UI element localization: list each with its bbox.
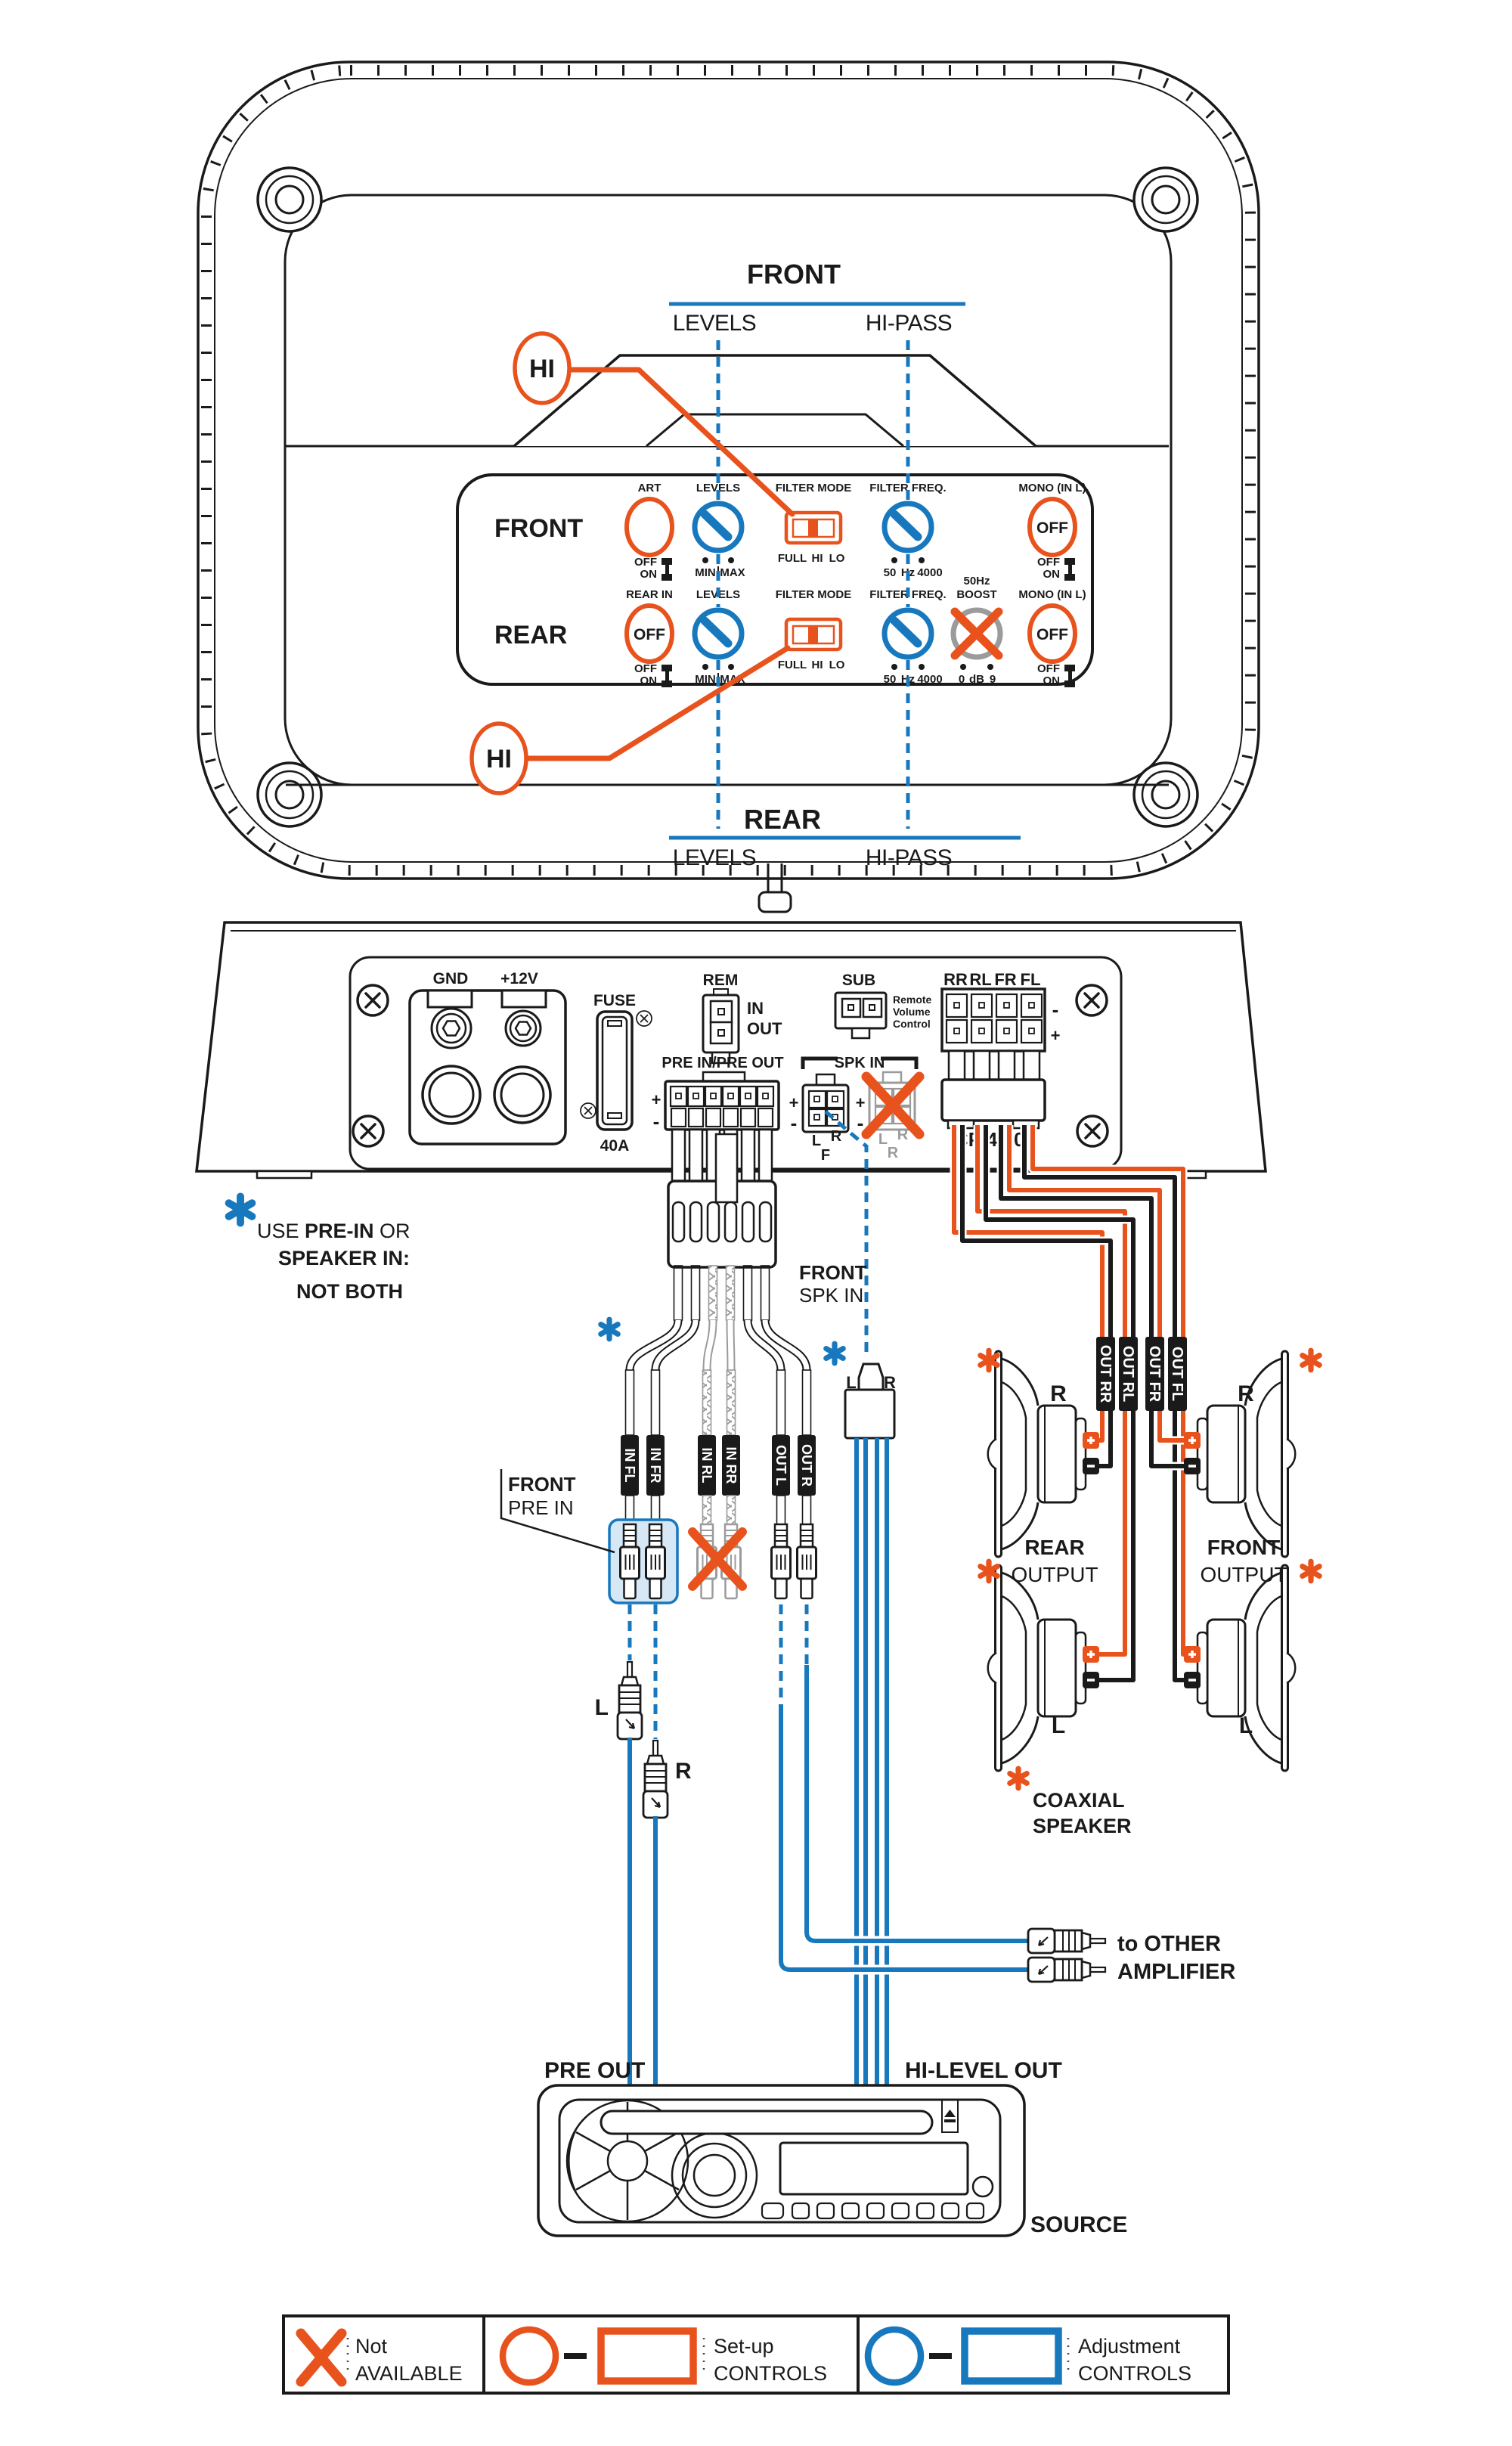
rear-in-on: ON <box>640 674 658 687</box>
fuse-rating: 40A <box>600 1137 630 1155</box>
freq-front-knob <box>885 504 931 550</box>
freq-rear-hi: 4000 <box>917 673 942 686</box>
rem-in-label: IN <box>747 999 764 1018</box>
front-pre-in-callout: FRONT PRE IN <box>501 1469 615 1552</box>
front-spk-in-2: SPK IN <box>799 1284 863 1307</box>
front-hipass-label: HI-PASS <box>866 311 952 336</box>
front-output-1: FRONT <box>1207 1536 1280 1559</box>
rear-output-2: OUTPUT <box>1011 1563 1098 1586</box>
boost-hi: 9 <box>990 673 996 686</box>
rear-right-speaker <box>988 1351 1099 1557</box>
rca-l-label: L <box>595 1695 609 1720</box>
other-amp-label-1: to OTHER <box>1117 1932 1221 1956</box>
mode-rear-lo: LO <box>829 659 845 671</box>
rear-in-off: OFF <box>634 662 657 675</box>
spk-in-label: SPK IN <box>835 1055 885 1071</box>
rem-out-label: OUT <box>747 1019 782 1038</box>
mono-rear-off: OFF <box>1037 662 1060 675</box>
screw-icon <box>1134 168 1198 231</box>
coaxial-label-2: SPEAKER <box>1033 1815 1132 1837</box>
tag-in-rr: IN RR <box>723 1447 739 1484</box>
legend-setup-2: CONTROLS <box>714 2362 827 2385</box>
out-minus: - <box>1052 998 1059 1021</box>
rear-title: REAR <box>744 804 821 835</box>
ch-fl-label: FL <box>1021 970 1041 989</box>
hi-bottom-label: HI <box>486 745 512 773</box>
screw-icon <box>353 1116 383 1146</box>
levels-front-max: MAX <box>720 566 745 579</box>
freq-front-hi: 4000 <box>917 566 942 579</box>
mode-front-lo: LO <box>829 552 845 565</box>
legend-adj-1: Adjustment <box>1078 2335 1181 2358</box>
art-header: ART <box>638 482 661 494</box>
rear-left-speaker <box>988 1565 1099 1771</box>
front-levels-label: LEVELS <box>673 311 756 336</box>
pre-label: PRE IN/PRE OUT <box>661 1055 783 1071</box>
spk-r-l: L <box>878 1131 888 1148</box>
rear-hipass-label: HI-PASS <box>866 845 952 870</box>
screw-icon <box>637 1011 652 1026</box>
filter-mode-front-switch <box>786 513 841 543</box>
spk-f-minus: - <box>791 1111 798 1134</box>
levels-front-min: MIN <box>695 566 716 579</box>
source-head-unit: PRE OUT HI-LEVEL OUT SOURCE <box>538 2058 1127 2237</box>
source-label: SOURCE <box>1030 2212 1127 2237</box>
spk-f-plus: + <box>789 1093 799 1112</box>
cd-slot <box>601 2111 932 2134</box>
rca-plug-l <box>618 1662 642 1739</box>
coaxial-asterisk-icon <box>1303 1561 1319 1581</box>
front-row-label: FRONT <box>494 514 583 543</box>
coaxial-asterisk-icon <box>1303 1350 1319 1370</box>
amplifier-wiring-diagram: FRONT REAR ART OFF ON LEVELS MIN MAX FIL… <box>0 0 1512 2442</box>
mono-front-header: MONO (IN L) <box>1018 482 1086 494</box>
spk-r-r: R <box>897 1127 909 1143</box>
spk-r-r2: R <box>888 1145 899 1161</box>
tag-out-rl: OUT RL <box>1120 1346 1136 1402</box>
rca-plug-to-amp-1 <box>1028 1929 1105 1953</box>
hi-level-out-label: HI-LEVEL OUT <box>905 2058 1062 2083</box>
filter-mode-rear-switch <box>786 619 841 649</box>
levels-rear-min: MIN <box>695 673 716 686</box>
mode-rear-full: FULL <box>778 659 807 671</box>
boost-unit: dB <box>969 673 984 686</box>
mono-front-value: OFF <box>1036 519 1068 537</box>
note-line3: NOT BOTH <box>296 1280 403 1303</box>
coaxial-asterisk-icon <box>1010 1769 1027 1788</box>
boost-header-2: BOOST <box>956 588 996 601</box>
front-pre-in-2: PRE IN <box>508 1496 574 1519</box>
legend-na-2: AVAILABLE <box>355 2362 463 2385</box>
front-title: FRONT <box>747 259 841 290</box>
art-on-label: ON <box>640 568 658 581</box>
legend: Not AVAILABLE Set-up CONTROLS Adjustment… <box>283 2316 1228 2393</box>
coaxial-note: COAXIAL SPEAKER <box>1010 1769 1132 1837</box>
rear-output-1: REAR <box>1024 1536 1084 1559</box>
screw-icon <box>258 763 321 826</box>
pre-plus: + <box>652 1090 661 1109</box>
ch-rr-label: RR <box>943 970 968 989</box>
screw-icon <box>1134 763 1198 826</box>
pre-out-lines: L R <box>595 1604 692 2085</box>
note-line1c: OR <box>374 1220 411 1242</box>
art-off-label: OFF <box>634 556 657 569</box>
mode-rear-header: FILTER MODE <box>776 588 852 601</box>
rear-in-header: REAR IN <box>626 588 673 601</box>
rca-jack-in-fr <box>646 1524 665 1598</box>
rca-jack-out-l <box>772 1524 791 1598</box>
front-r-label: R <box>1238 1381 1254 1406</box>
pre-cable-bundle: IN FL IN FR IN RL IN RR OUT L OUT R FRON… <box>501 1266 816 1603</box>
rca-r-label: R <box>675 1759 692 1784</box>
note-asterisk-icon <box>826 1344 843 1363</box>
spk-r-minus: - <box>857 1111 864 1134</box>
note-line1b: PRE-IN <box>305 1220 374 1242</box>
rear-r-label: R <box>1050 1381 1067 1406</box>
rca-plug-r <box>643 1741 668 1818</box>
note-line1a: USE <box>257 1220 305 1242</box>
speaker-output-terminal: RR RL FR FL - + <box>942 970 1060 1128</box>
boost-lo: 0 <box>959 673 965 686</box>
to-other-amplifier: to OTHER AMPLIFIER <box>781 1604 1235 1984</box>
boost-header-1: 50Hz <box>963 575 990 587</box>
spk-f-r: R <box>831 1128 842 1145</box>
mono-rear-header: MONO (IN L) <box>1018 588 1086 601</box>
tag-out-fr: OUT FR <box>1146 1346 1163 1403</box>
screw-icon <box>358 985 388 1015</box>
fuse-label: FUSE <box>593 992 636 1009</box>
svg-text:USE PRE-IN OR: USE PRE-IN OR <box>257 1220 411 1242</box>
screw-icon <box>581 1103 596 1118</box>
note-asterisk-icon <box>229 1196 253 1223</box>
pre-minus: - <box>653 1110 660 1133</box>
tag-in-rl: IN RL <box>699 1448 714 1483</box>
pre-in-note: USE PRE-IN OR SPEAKER IN: NOT BOTH <box>229 1196 411 1303</box>
rca-plug-to-amp-2 <box>1028 1958 1105 1982</box>
tag-in-fl: IN FL <box>622 1449 637 1483</box>
freq-rear-knob <box>885 610 931 657</box>
rear-l-label: L <box>1052 1713 1065 1738</box>
freq-rear-lo: 50 <box>884 673 897 686</box>
out-plus: + <box>1051 1026 1061 1045</box>
spk-plug-l: L <box>846 1373 856 1392</box>
mode-front-header: FILTER MODE <box>776 482 852 494</box>
spk-f-l: L <box>812 1133 821 1149</box>
plus12v-label: +12V <box>500 970 538 987</box>
mono-front-off: OFF <box>1037 556 1060 569</box>
screw-icon <box>258 168 321 231</box>
note-line2: SPEAKER IN: <box>278 1247 410 1270</box>
note-asterisk-icon <box>601 1319 618 1339</box>
speaker-wire-tags: OUT RR OUT RL OUT FR OUT FL <box>1096 1337 1187 1411</box>
freq-front-lo: 50 <box>884 566 897 579</box>
levels-rear-knob <box>695 610 742 657</box>
sub-note-3: Control <box>893 1018 931 1030</box>
mono-rear-value: OFF <box>1036 626 1068 643</box>
screw-icon <box>1077 985 1107 1015</box>
spk-f-f: F <box>821 1147 830 1164</box>
front-spk-in-1: FRONT <box>799 1261 867 1284</box>
rem-label: REM <box>703 972 739 989</box>
screw-icon <box>1077 1116 1108 1146</box>
rca-jack-out-r <box>798 1524 816 1598</box>
front-left-speaker <box>1184 1565 1295 1771</box>
hi-top-label: HI <box>529 355 555 383</box>
amp-top-view: FRONT REAR ART OFF ON LEVELS MIN MAX FIL… <box>198 62 1259 912</box>
mode-rear-hi: HI <box>812 659 823 671</box>
sub-note-1: Remote <box>893 994 932 1006</box>
tag-out-r: OUT R <box>799 1444 814 1487</box>
gnd-label: GND <box>433 970 469 987</box>
spk-plug-r: R <box>884 1373 896 1392</box>
pre-out-label: PRE OUT <box>544 2058 645 2083</box>
rca-jack-in-fl <box>621 1524 640 1598</box>
rear-row-label: REAR <box>494 621 567 649</box>
ch-rl-label: RL <box>969 970 991 989</box>
pre-in-out-connector: PRE IN/PRE OUT + - <box>652 1055 784 1267</box>
power-terminals: GND +12V <box>410 970 565 1144</box>
front-pre-in-1: FRONT <box>508 1473 576 1496</box>
levels-front-knob <box>695 504 742 550</box>
sub-note-2: Volume <box>893 1006 931 1018</box>
legend-setup-1: Set-up <box>714 2335 774 2358</box>
ch-fr-label: FR <box>994 970 1016 989</box>
tag-out-fl: OUT FL <box>1169 1347 1185 1401</box>
rear-in-value: OFF <box>634 626 665 643</box>
legend-na-1: Not <box>355 2335 388 2358</box>
rear-levels-label: LEVELS <box>673 845 756 870</box>
art-control <box>627 499 672 555</box>
front-l-label: L <box>1239 1713 1253 1738</box>
sub-label: SUB <box>842 972 875 989</box>
other-amp-label-2: AMPLIFIER <box>1117 1960 1235 1984</box>
front-output-2: OUTPUT <box>1200 1563 1287 1586</box>
coaxial-label-1: COAXIAL <box>1033 1789 1125 1812</box>
tag-out-rr: OUT RR <box>1097 1345 1114 1403</box>
mono-rear-on: ON <box>1043 674 1061 687</box>
tag-in-fr: IN FR <box>648 1448 663 1483</box>
legend-adj-2: CONTROLS <box>1078 2362 1191 2385</box>
spk-r-plus: + <box>856 1093 866 1112</box>
mode-front-hi: HI <box>812 552 823 565</box>
tag-out-l: OUT L <box>773 1445 789 1486</box>
mono-front-on: ON <box>1043 568 1061 581</box>
mode-front-full: FULL <box>778 552 807 565</box>
